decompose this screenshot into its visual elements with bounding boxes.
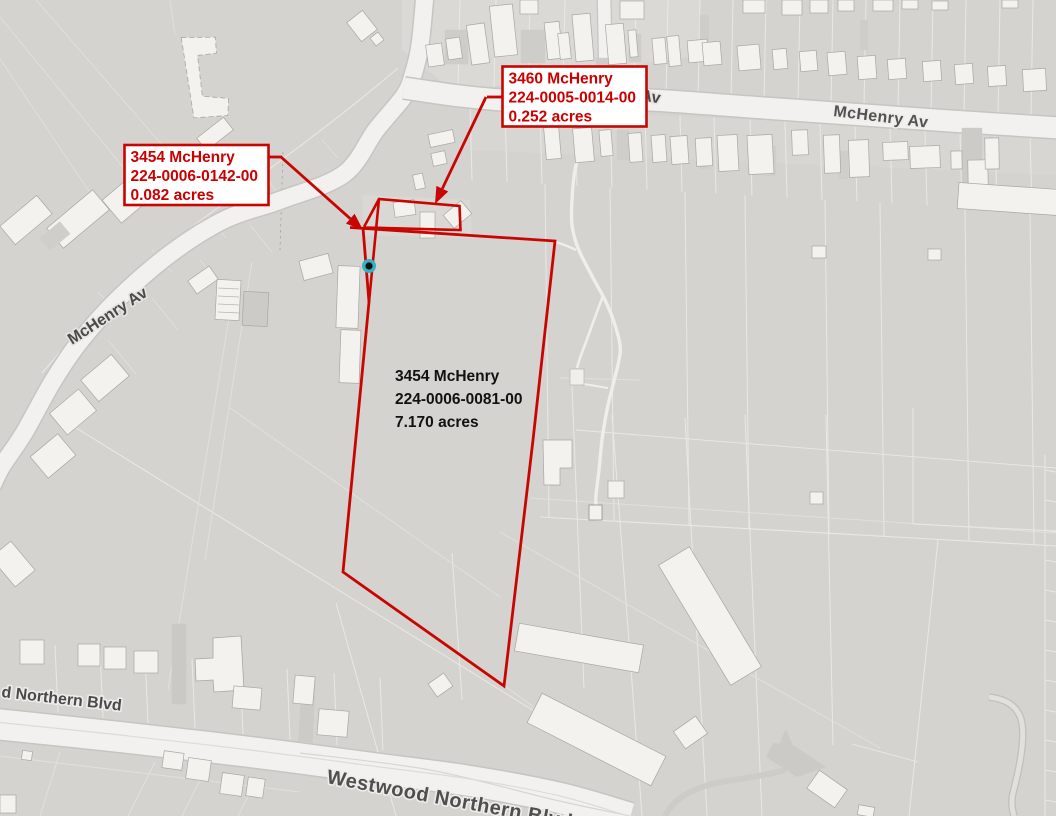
svg-text:0.082 acres: 0.082 acres bbox=[131, 187, 215, 204]
svg-text:3454 McHenry: 3454 McHenry bbox=[395, 368, 500, 385]
svg-text:224-0005-0014-00: 224-0005-0014-00 bbox=[509, 90, 637, 107]
svg-text:224-0006-0142-00: 224-0006-0142-00 bbox=[131, 168, 259, 185]
svg-text:0.252 acres: 0.252 acres bbox=[509, 109, 593, 126]
svg-text:224-0006-0081-00: 224-0006-0081-00 bbox=[395, 391, 523, 408]
svg-text:3454 McHenry: 3454 McHenry bbox=[131, 149, 236, 166]
svg-text:3460 McHenry: 3460 McHenry bbox=[509, 71, 614, 88]
svg-text:7.170 acres: 7.170 acres bbox=[395, 414, 479, 431]
